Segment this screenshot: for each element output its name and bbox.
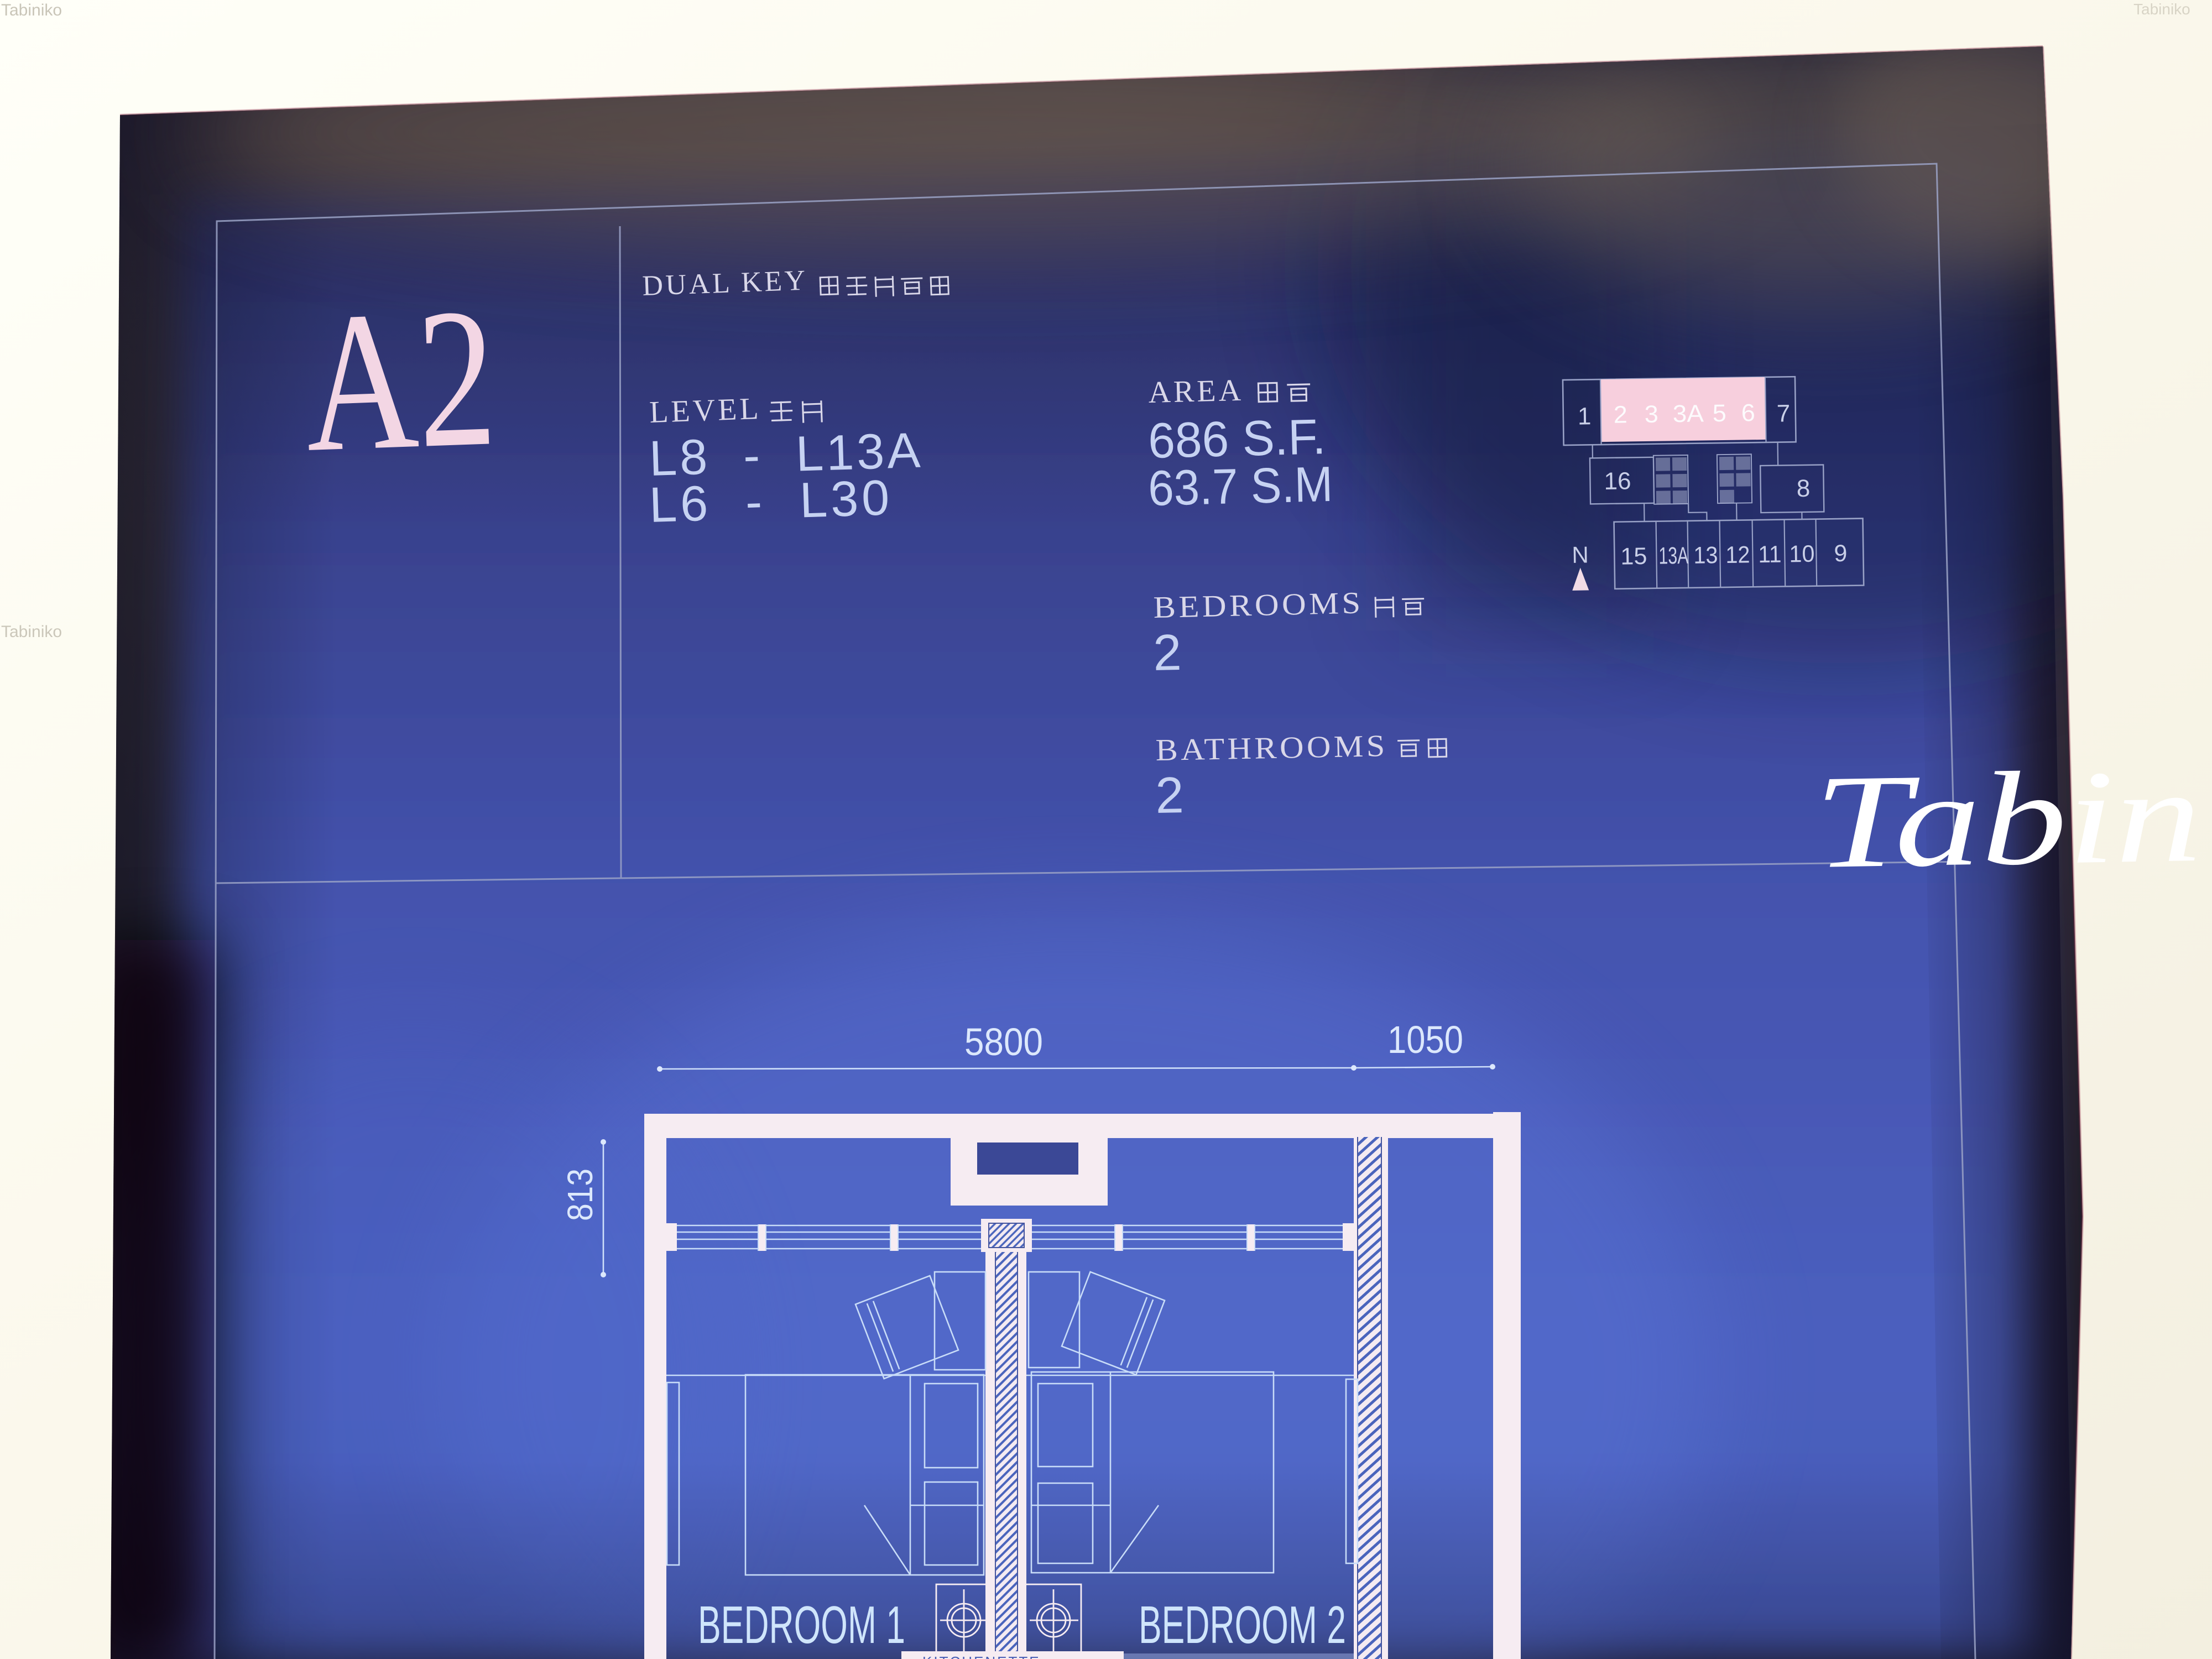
svg-text:13: 13 bbox=[1693, 542, 1718, 569]
svg-text:KITCHENETTE: KITCHENETTE bbox=[922, 1653, 1041, 1659]
svg-text:6: 6 bbox=[1741, 399, 1755, 426]
svg-text:Tabiniko: Tabiniko bbox=[1, 1, 62, 19]
svg-text:Tabiniko: Tabiniko bbox=[1, 623, 62, 641]
svg-text:BATHROOMS: BATHROOMS bbox=[1155, 729, 1388, 768]
svg-text:1: 1 bbox=[1578, 403, 1592, 430]
svg-text:3A: 3A bbox=[1672, 400, 1704, 427]
svg-text:3: 3 bbox=[1645, 401, 1659, 428]
svg-text:LEVEL: LEVEL bbox=[649, 392, 761, 430]
svg-text:2: 2 bbox=[1152, 624, 1182, 681]
svg-text:AREA: AREA bbox=[1148, 373, 1244, 410]
svg-text:2: 2 bbox=[1155, 767, 1184, 824]
svg-text:10: 10 bbox=[1789, 541, 1815, 568]
svg-text:9: 9 bbox=[1834, 540, 1848, 567]
svg-text:5800: 5800 bbox=[964, 1020, 1043, 1063]
svg-text:BEDROOM 1: BEDROOM 1 bbox=[698, 1595, 905, 1655]
svg-text:63.7 S.M: 63.7 S.M bbox=[1147, 457, 1333, 517]
svg-text:2: 2 bbox=[1614, 401, 1628, 428]
svg-text:813: 813 bbox=[560, 1168, 600, 1221]
svg-text:Tabin: Tabin bbox=[1813, 742, 2203, 896]
svg-text:11: 11 bbox=[1758, 541, 1782, 568]
svg-text:15: 15 bbox=[1620, 543, 1647, 570]
svg-text:7: 7 bbox=[1777, 400, 1791, 427]
svg-text:5: 5 bbox=[1712, 400, 1726, 427]
svg-text:12: 12 bbox=[1725, 541, 1750, 568]
svg-text:13A: 13A bbox=[1658, 542, 1689, 570]
svg-text:1050: 1050 bbox=[1387, 1018, 1463, 1061]
svg-text:16: 16 bbox=[1604, 467, 1631, 495]
svg-text:DUAL KEY: DUAL KEY bbox=[641, 265, 806, 302]
svg-text:Tabiniko: Tabiniko bbox=[2133, 1, 2190, 18]
svg-text:L6 - L30: L6 - L30 bbox=[648, 470, 893, 533]
svg-text:A2: A2 bbox=[301, 266, 499, 493]
svg-text:8: 8 bbox=[1796, 475, 1810, 502]
svg-text:N: N bbox=[1572, 541, 1589, 567]
svg-text:BEDROOMS: BEDROOMS bbox=[1153, 586, 1364, 625]
svg-text:BEDROOM 2: BEDROOM 2 bbox=[1139, 1595, 1346, 1655]
